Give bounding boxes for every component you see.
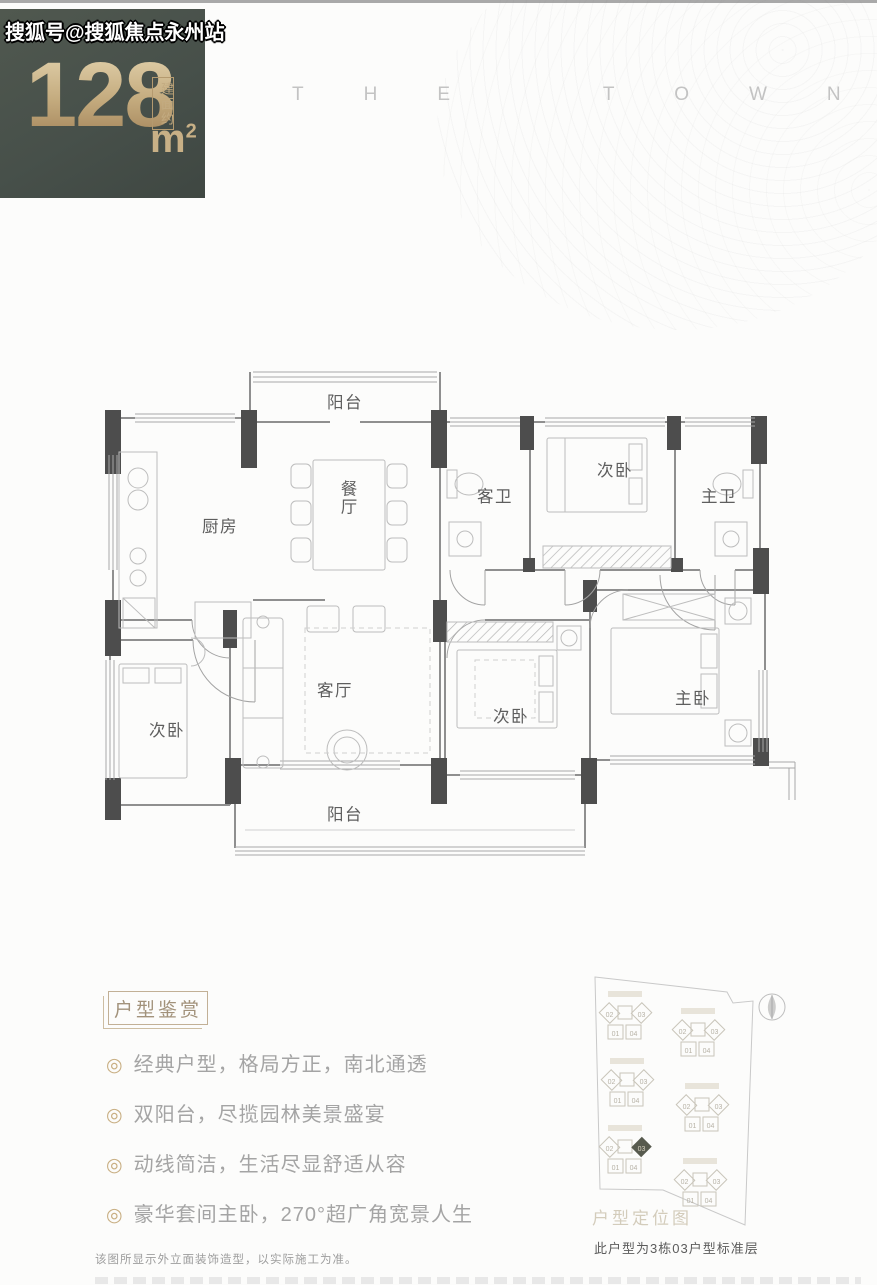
svg-text:03: 03 [713, 1179, 721, 1186]
room-label-kitchen: 厨房 [202, 517, 238, 536]
cropped-faint-text-line [95, 1277, 861, 1284]
room-label-bedroom-top: 次卧 [597, 461, 633, 480]
siteplan-note: 此户型为3栋03户型标准层 [594, 1238, 759, 1257]
highlights-title: 户型鉴赏 [114, 995, 202, 1022]
page: THE TOWN 128 建面约 m2 搜狐号@搜狐焦点永州站 [0, 0, 877, 1285]
svg-text:02: 02 [606, 1012, 614, 1019]
room-label-balcony-top: 阳台 [327, 393, 363, 412]
svg-text:03: 03 [640, 1079, 648, 1086]
siteplan-caption: 户型定位图 [592, 1204, 692, 1229]
svg-text:03: 03 [711, 1029, 719, 1036]
svg-text:04: 04 [703, 1048, 711, 1055]
svg-text:04: 04 [630, 1165, 638, 1172]
bullet-icon: ◎ [106, 1205, 124, 1226]
svg-text:04: 04 [705, 1198, 713, 1205]
watermark-text: 搜狐号@搜狐焦点永州站 [5, 16, 225, 45]
room-label-bedroom-mid: 次卧 [493, 707, 529, 726]
room-label-dining: 餐厅 [338, 480, 357, 516]
room-label-master-bath: 主卫 [701, 487, 737, 506]
svg-text:01: 01 [612, 1031, 620, 1038]
building-clusters: 0203010402030104020301040203010402030104… [599, 991, 729, 1206]
bullet-icon: ◎ [106, 1155, 124, 1176]
highlights-list: ◎经典户型，格局方正，南北通透 ◎双阳台，尽揽园林美景盛宴 ◎动线简洁，生活尽显… [106, 1048, 473, 1248]
room-label-master-bedroom: 主卧 [675, 689, 711, 708]
highlight-item: ◎双阳台，尽揽园林美景盛宴 [106, 1098, 473, 1127]
bullet-icon: ◎ [106, 1105, 124, 1126]
ripple-watermark-pattern [437, 0, 877, 330]
svg-text:02: 02 [683, 1104, 691, 1111]
highlight-item: ◎豪华套间主卧，270°超广角宽景人生 [106, 1198, 473, 1227]
svg-text:01: 01 [689, 1123, 697, 1130]
svg-text:03: 03 [638, 1012, 646, 1019]
bullet-icon: ◎ [106, 1055, 124, 1076]
disclaimer-text: 该图所显示外立面装饰造型，以实际施工为准。 [95, 1251, 358, 1267]
brand-text: THE TOWN [292, 84, 877, 106]
room-label-living: 客厅 [317, 681, 353, 700]
svg-text:01: 01 [612, 1165, 620, 1172]
svg-text:04: 04 [632, 1098, 640, 1105]
area-unit: m2 [150, 117, 197, 162]
svg-text:03: 03 [715, 1104, 723, 1111]
svg-text:02: 02 [681, 1179, 689, 1186]
room-label-balcony-bottom: 阳台 [327, 805, 363, 824]
svg-text:04: 04 [707, 1123, 715, 1130]
svg-text:04: 04 [630, 1031, 638, 1038]
highlight-item: ◎动线简洁，生活尽显舒适从容 [106, 1148, 473, 1177]
svg-text:01: 01 [614, 1098, 622, 1105]
highlights-title-box: 户型鉴赏 [108, 991, 208, 1025]
svg-text:03: 03 [638, 1146, 646, 1153]
walls-dark-piers [105, 410, 769, 820]
floorplan-drawing: 阳台 厨房 餐厅 客卫 次卧 主卫 次卧 客厅 次卧 主卧 阳台 [95, 360, 805, 880]
room-label-guest-bath: 客卫 [477, 487, 513, 506]
svg-text:02: 02 [679, 1029, 687, 1036]
compass-icon [759, 994, 785, 1020]
svg-text:02: 02 [608, 1079, 616, 1086]
top-border-line [0, 0, 877, 3]
highlight-item: ◎经典户型，格局方正，南北通透 [106, 1048, 473, 1077]
room-label-bedroom-left: 次卧 [149, 721, 185, 740]
svg-text:01: 01 [685, 1048, 693, 1055]
svg-text:02: 02 [606, 1146, 614, 1153]
